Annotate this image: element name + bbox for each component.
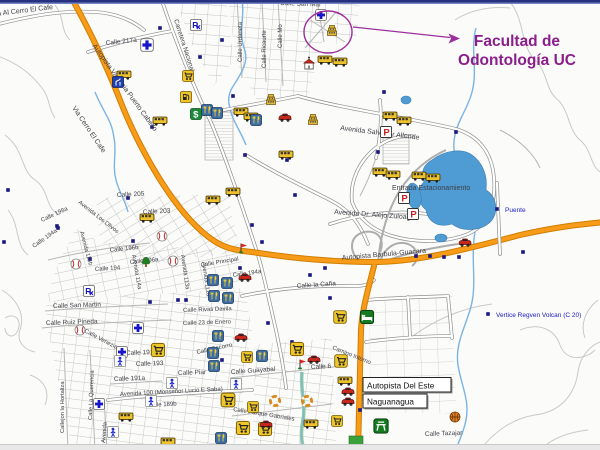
road-node [238,266,242,270]
restaurant-icon[interactable] [212,108,223,119]
restaurant-icon[interactable] [222,278,233,289]
autopista-del-este-label: Autopista Del Este [367,382,435,391]
annotation-line2: Odontología UC [458,52,576,69]
restaurant-icon[interactable] [209,291,220,302]
road-node [131,239,135,243]
road-node [148,300,152,304]
road-node [2,240,6,244]
hospital-cross-icon[interactable] [133,323,144,334]
street-label: Calle 205 [117,191,145,199]
road-node [376,150,380,154]
shopping-cart-icon[interactable] [332,416,343,427]
naguanagua-label: Naguanagua [367,398,414,407]
window-top-edge-inner [0,3,600,5]
road-node [250,223,254,227]
shopping-cart-icon[interactable] [242,352,253,363]
naguanagua-callout: Naguanagua [363,394,429,410]
restaurant-icon[interactable] [216,433,227,444]
street-label: Calle Piar [178,369,207,377]
street-label: Vertice Regven Volcan (C 20) [496,312,581,319]
road-node [220,358,224,362]
baseball-icon[interactable] [71,259,81,269]
pedestrian-icon[interactable] [115,356,126,367]
road-node [486,312,490,316]
road-node [56,226,60,230]
parking-icon[interactable] [399,193,410,205]
road-node [442,255,446,259]
autopista-del-este-callout: Autopista Del Este [363,378,453,394]
baseball-icon[interactable] [75,325,85,335]
baseball-icon[interactable] [168,256,178,266]
pedestrian-icon[interactable] [146,396,157,407]
street-label: Calle 6 [311,363,332,371]
map-canvas[interactable]: R $ P [0,0,600,450]
basketball-icon[interactable] [450,412,460,422]
pharmacy-rx-icon[interactable] [84,286,95,297]
street-label: Calle Tazajar [425,430,464,438]
window-bottom-edge [0,445,600,450]
hospital-cross-icon[interactable] [94,399,105,410]
road-node [495,207,499,211]
road-node [521,250,525,254]
shopping-cart-icon[interactable] [236,421,249,434]
road-node [243,153,247,157]
street-label: Calle 193 [136,360,164,368]
restaurant-icon[interactable] [202,105,213,116]
road-node [308,273,312,277]
baseball-icon[interactable] [157,231,167,241]
road-node [285,158,289,162]
road-node [428,254,432,258]
map-screen: R $ P [0,0,600,450]
road-node [382,90,386,94]
lodging-icon[interactable] [360,310,373,323]
road-node [358,408,362,412]
window-top-edge [0,0,600,3]
road-node [328,296,332,300]
restaurant-icon[interactable] [208,348,219,359]
shopping-cart-icon[interactable] [334,311,347,324]
street-label: Entrada Estacionamiento [392,185,470,192]
shopping-cart-icon[interactable] [151,343,164,356]
road-node [6,188,10,192]
restaurant-icon[interactable] [208,275,219,286]
road-node [176,298,180,302]
street-label: Puente [505,207,526,214]
pedestrian-icon[interactable] [231,379,242,390]
annotation-line1: Facultad de [474,33,561,50]
pharmacy-rx-icon[interactable] [191,20,202,31]
pedestrian-icon[interactable] [108,427,119,438]
road-node [198,55,202,59]
restaurant-icon[interactable] [257,351,268,362]
shopping-cart-icon[interactable] [290,342,303,355]
road-node [158,26,162,30]
hospital-cross-icon[interactable] [141,39,154,52]
fuel-pump-icon[interactable] [181,92,192,103]
restaurant-icon[interactable] [223,293,234,304]
highway-sign-icon[interactable] [113,77,124,88]
rest-area-icon[interactable] [374,419,388,433]
street-label: Calle Ricaurte [262,30,268,68]
shopping-cart-icon[interactable] [248,402,259,413]
restaurant-icon[interactable] [209,361,220,372]
road-node [231,94,235,98]
street-label: Calle Urdaneta [238,21,244,62]
shopping-cart-icon[interactable] [221,393,235,407]
street-label: Callejon la Hortaliza [60,381,66,433]
road-node [323,266,327,270]
pedestrian-icon[interactable] [167,378,178,389]
road-node [454,130,458,134]
road-node [457,255,461,259]
restaurant-icon[interactable] [251,115,262,126]
restaurant-icon[interactable] [213,331,224,342]
street-label: Calle Mo [278,24,284,48]
road-node [184,298,188,302]
parking-icon[interactable] [408,209,419,221]
road-node [293,193,297,197]
road-node [220,38,224,42]
road-node [260,240,264,244]
road-node [266,321,270,325]
parking-icon[interactable] [381,127,392,139]
shopping-cart-icon[interactable] [335,355,348,368]
shopping-cart-icon[interactable] [183,71,194,82]
street-label: Calle 191a [114,375,146,383]
bank-dollar-icon[interactable] [191,109,202,121]
